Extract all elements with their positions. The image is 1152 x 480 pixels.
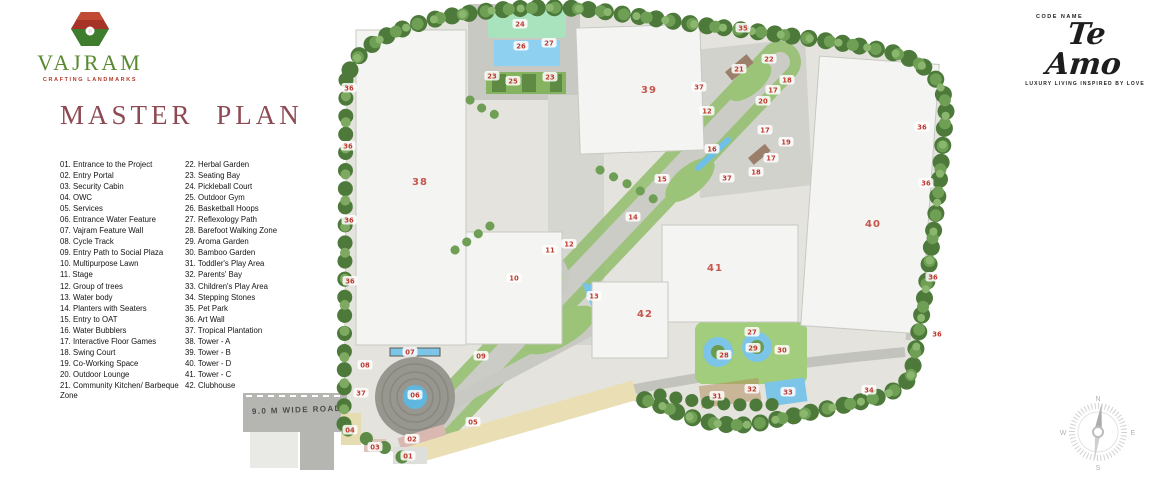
tower-label-41: 41 (707, 263, 723, 274)
svg-text:17: 17 (766, 154, 776, 162)
plan-marker-24: 24 (513, 19, 528, 29)
legend-item-30: 30. Bamboo Garden (185, 248, 307, 258)
svg-text:20: 20 (758, 97, 768, 105)
plan-marker-08: 08 (358, 360, 373, 370)
compass-w: W (1060, 430, 1067, 437)
plan-marker-25: 25 (506, 76, 521, 86)
plan-marker-30: 30 (775, 345, 790, 355)
svg-text:34: 34 (864, 386, 874, 394)
svg-text:36: 36 (917, 123, 927, 131)
plan-marker-36: 36 (342, 215, 357, 225)
legend-item-11: 11. Stage (60, 270, 182, 280)
svg-text:13: 13 (589, 292, 599, 300)
svg-text:21: 21 (734, 65, 744, 73)
tower-41-footprint (662, 225, 798, 322)
svg-text:36: 36 (928, 273, 938, 281)
svg-text:12: 12 (564, 240, 574, 248)
legend-item-29: 29. Aroma Garden (185, 237, 307, 247)
plan-marker-20: 20 (756, 96, 771, 106)
tower-39-footprint (576, 24, 704, 154)
legend-item-31: 31. Toddler's Play Area (185, 259, 307, 269)
plan-marker-09: 09 (474, 351, 489, 361)
legend-item-08: 08. Cycle Track (60, 237, 182, 247)
svg-text:04: 04 (345, 426, 355, 434)
plan-marker-12: 12 (562, 239, 577, 249)
svg-text:29: 29 (748, 344, 758, 352)
legend-item-32: 32. Parents' Bay (185, 270, 307, 280)
plan-marker-31: 31 (710, 391, 725, 401)
svg-text:09: 09 (476, 352, 486, 360)
plan-marker-22: 22 (762, 54, 777, 64)
svg-text:26: 26 (516, 42, 526, 50)
svg-text:36: 36 (932, 330, 942, 338)
svg-text:08: 08 (360, 361, 370, 369)
plan-marker-23: 23 (543, 72, 558, 82)
svg-text:01: 01 (403, 452, 413, 460)
legend-item-35: 35. Pet Park (185, 304, 307, 314)
legend-item-01: 01. Entrance to the Project (60, 160, 182, 170)
project-name: Te Amo (1021, 20, 1149, 80)
legend-item-15: 15. Entry to OAT (60, 315, 182, 325)
tower-label-40: 40 (865, 219, 881, 230)
tower-38-footprint (356, 30, 466, 345)
plan-marker-17: 17 (758, 125, 773, 135)
svg-text:36: 36 (345, 277, 355, 285)
plan-marker-32: 32 (745, 384, 760, 394)
plan-marker-17: 17 (764, 153, 779, 163)
svg-text:37: 37 (356, 389, 366, 397)
svg-text:31: 31 (712, 392, 722, 400)
legend-item-07: 07. Vajram Feature Wall (60, 226, 182, 236)
svg-text:02: 02 (407, 435, 417, 443)
svg-text:36: 36 (344, 216, 354, 224)
legend-item-34: 34. Stepping Stones (185, 293, 307, 303)
plan-marker-26: 26 (514, 41, 529, 51)
svg-text:23: 23 (487, 72, 497, 80)
plan-marker-14: 14 (626, 212, 641, 222)
legend-item-27: 27. Reflexology Path (185, 215, 307, 225)
svg-text:28: 28 (719, 351, 729, 359)
plan-marker-05: 05 (466, 417, 481, 427)
plan-marker-02: 02 (405, 434, 420, 444)
legend-item-23: 23. Seating Bay (185, 171, 307, 181)
legend-column-1: 01. Entrance to the Project02. Entry Por… (60, 160, 182, 402)
plan-marker-37: 37 (354, 388, 369, 398)
plan-marker-35: 35 (736, 23, 751, 33)
legend-item-18: 18. Swing Court (60, 348, 182, 358)
legend-item-17: 17. Interactive Floor Games (60, 337, 182, 347)
svg-text:30: 30 (777, 346, 787, 354)
legend-item-36: 36. Art Wall (185, 315, 307, 325)
brand-tagline: CRAFTING LANDMARKS (20, 77, 160, 83)
svg-text:14: 14 (628, 213, 638, 221)
svg-text:27: 27 (747, 328, 757, 336)
plan-marker-04: 04 (343, 425, 358, 435)
plan-marker-11: 11 (543, 245, 558, 255)
legend-item-05: 05. Services (60, 204, 182, 214)
compass-n: N (1095, 396, 1100, 403)
compass-s: S (1096, 465, 1101, 472)
legend-item-04: 04. OWC (60, 193, 182, 203)
legend-item-06: 06. Entrance Water Feature (60, 215, 182, 225)
plan-marker-36: 36 (926, 272, 941, 282)
plan-marker-27: 27 (542, 38, 557, 48)
legend-item-42: 42. Clubhouse (185, 381, 307, 391)
svg-text:17: 17 (768, 86, 778, 94)
legend-item-09: 09. Entry Path to Social Plaza (60, 248, 182, 258)
plan-marker-36: 36 (930, 329, 945, 339)
svg-text:22: 22 (764, 55, 774, 63)
brand-name: VAJRAM (20, 50, 160, 76)
plan-marker-18: 18 (780, 75, 795, 85)
svg-text:11: 11 (545, 246, 555, 254)
plan-marker-27: 27 (745, 327, 760, 337)
svg-text:37: 37 (694, 83, 704, 91)
svg-text:33: 33 (783, 388, 793, 396)
legend-item-10: 10. Multipurpose Lawn (60, 259, 182, 269)
legend-item-28: 28. Barefoot Walking Zone (185, 226, 307, 236)
plan-marker-36: 36 (341, 141, 356, 151)
plan-marker-37: 37 (692, 82, 707, 92)
plan-marker-36: 36 (342, 83, 357, 93)
plan-marker-07: 07 (403, 347, 418, 357)
svg-text:06: 06 (410, 391, 420, 399)
legend-item-02: 02. Entry Portal (60, 171, 182, 181)
compass-icon: N E S W (1058, 392, 1138, 472)
plan-marker-36: 36 (343, 276, 358, 286)
compass-e: E (1131, 430, 1136, 437)
plan-marker-33: 33 (781, 387, 796, 397)
svg-text:36: 36 (921, 179, 931, 187)
legend-item-21: 21. Community Kitchen/ Barbeque Zone (60, 381, 182, 400)
plan-marker-23: 23 (485, 71, 500, 81)
vajram-gem-icon (68, 10, 112, 48)
svg-text:16: 16 (707, 145, 717, 153)
plan-marker-01: 01 (401, 451, 416, 461)
plan-marker-13: 13 (587, 291, 602, 301)
plan-marker-36: 36 (919, 178, 934, 188)
legend-item-22: 22. Herbal Garden (185, 160, 307, 170)
svg-text:07: 07 (405, 348, 415, 356)
access-road: 9.0 M WIDE ROAD (243, 393, 347, 470)
legend-item-25: 25. Outdoor Gym (185, 193, 307, 203)
plan-marker-12: 12 (700, 106, 715, 116)
svg-text:10: 10 (509, 274, 519, 282)
project-logo: CODE NAME Te Amo LUXURY LIVING INSPIRED … (1024, 14, 1146, 87)
plan-marker-21: 21 (732, 64, 747, 74)
plan-marker-29: 29 (746, 343, 761, 353)
master-plan-page: 9.0 M WIDE ROAD (0, 0, 1152, 480)
svg-text:05: 05 (468, 418, 478, 426)
plan-marker-18: 18 (749, 167, 764, 177)
plan-marker-03: 03 (368, 442, 383, 452)
plan-marker-28: 28 (717, 350, 732, 360)
plan-marker-36: 36 (915, 122, 930, 132)
svg-text:24: 24 (515, 20, 525, 28)
svg-text:03: 03 (370, 443, 380, 451)
svg-text:27: 27 (544, 39, 554, 47)
legend-item-39: 39. Tower - B (185, 348, 307, 358)
legend-item-20: 20. Outdoor Lounge (60, 370, 182, 380)
plan-marker-10: 10 (507, 273, 522, 283)
legend-item-19: 19. Co-Working Space (60, 359, 182, 369)
legend-item-14: 14. Planters with Seaters (60, 304, 182, 314)
svg-text:12: 12 (702, 107, 712, 115)
vajram-logo: VAJRAM CRAFTING LANDMARKS (20, 10, 160, 83)
svg-text:35: 35 (738, 24, 748, 32)
svg-text:36: 36 (343, 142, 353, 150)
svg-text:36: 36 (344, 84, 354, 92)
page-title: MASTER PLAN (60, 100, 303, 131)
svg-text:32: 32 (747, 385, 757, 393)
svg-text:37: 37 (722, 174, 732, 182)
svg-text:18: 18 (782, 76, 792, 84)
svg-text:23: 23 (545, 73, 555, 81)
legend-item-37: 37. Tropical Plantation (185, 326, 307, 336)
svg-text:15: 15 (657, 175, 667, 183)
plan-marker-06: 06 (408, 390, 423, 400)
clubhouse-footprint (592, 282, 668, 358)
svg-text:25: 25 (508, 77, 518, 85)
legend-item-40: 40. Tower - D (185, 359, 307, 369)
svg-text:18: 18 (751, 168, 761, 176)
legend-item-16: 16. Water Bubblers (60, 326, 182, 336)
legend-item-03: 03. Security Cabin (60, 182, 182, 192)
plan-marker-17: 17 (766, 85, 781, 95)
legend-column-2: 22. Herbal Garden23. Seating Bay24. Pick… (185, 160, 307, 392)
tower-label-38: 38 (412, 177, 428, 188)
tower-label-42: 42 (637, 309, 653, 320)
legend-item-13: 13. Water body (60, 293, 182, 303)
svg-text:19: 19 (781, 138, 791, 146)
legend-item-38: 38. Tower - A (185, 337, 307, 347)
svg-text:17: 17 (760, 126, 770, 134)
plan-marker-15: 15 (655, 174, 670, 184)
plan-marker-19: 19 (779, 137, 794, 147)
plan-marker-16: 16 (705, 144, 720, 154)
tower-label-39: 39 (641, 85, 657, 96)
plan-marker-34: 34 (862, 385, 877, 395)
legend-item-33: 33. Children's Play Area (185, 282, 307, 292)
legend-item-26: 26. Basketball Hoops (185, 204, 307, 214)
plan-marker-37: 37 (720, 173, 735, 183)
legend-item-24: 24. Pickleball Court (185, 182, 307, 192)
legend-item-12: 12. Group of trees (60, 282, 182, 292)
legend-item-41: 41. Tower - C (185, 370, 307, 380)
